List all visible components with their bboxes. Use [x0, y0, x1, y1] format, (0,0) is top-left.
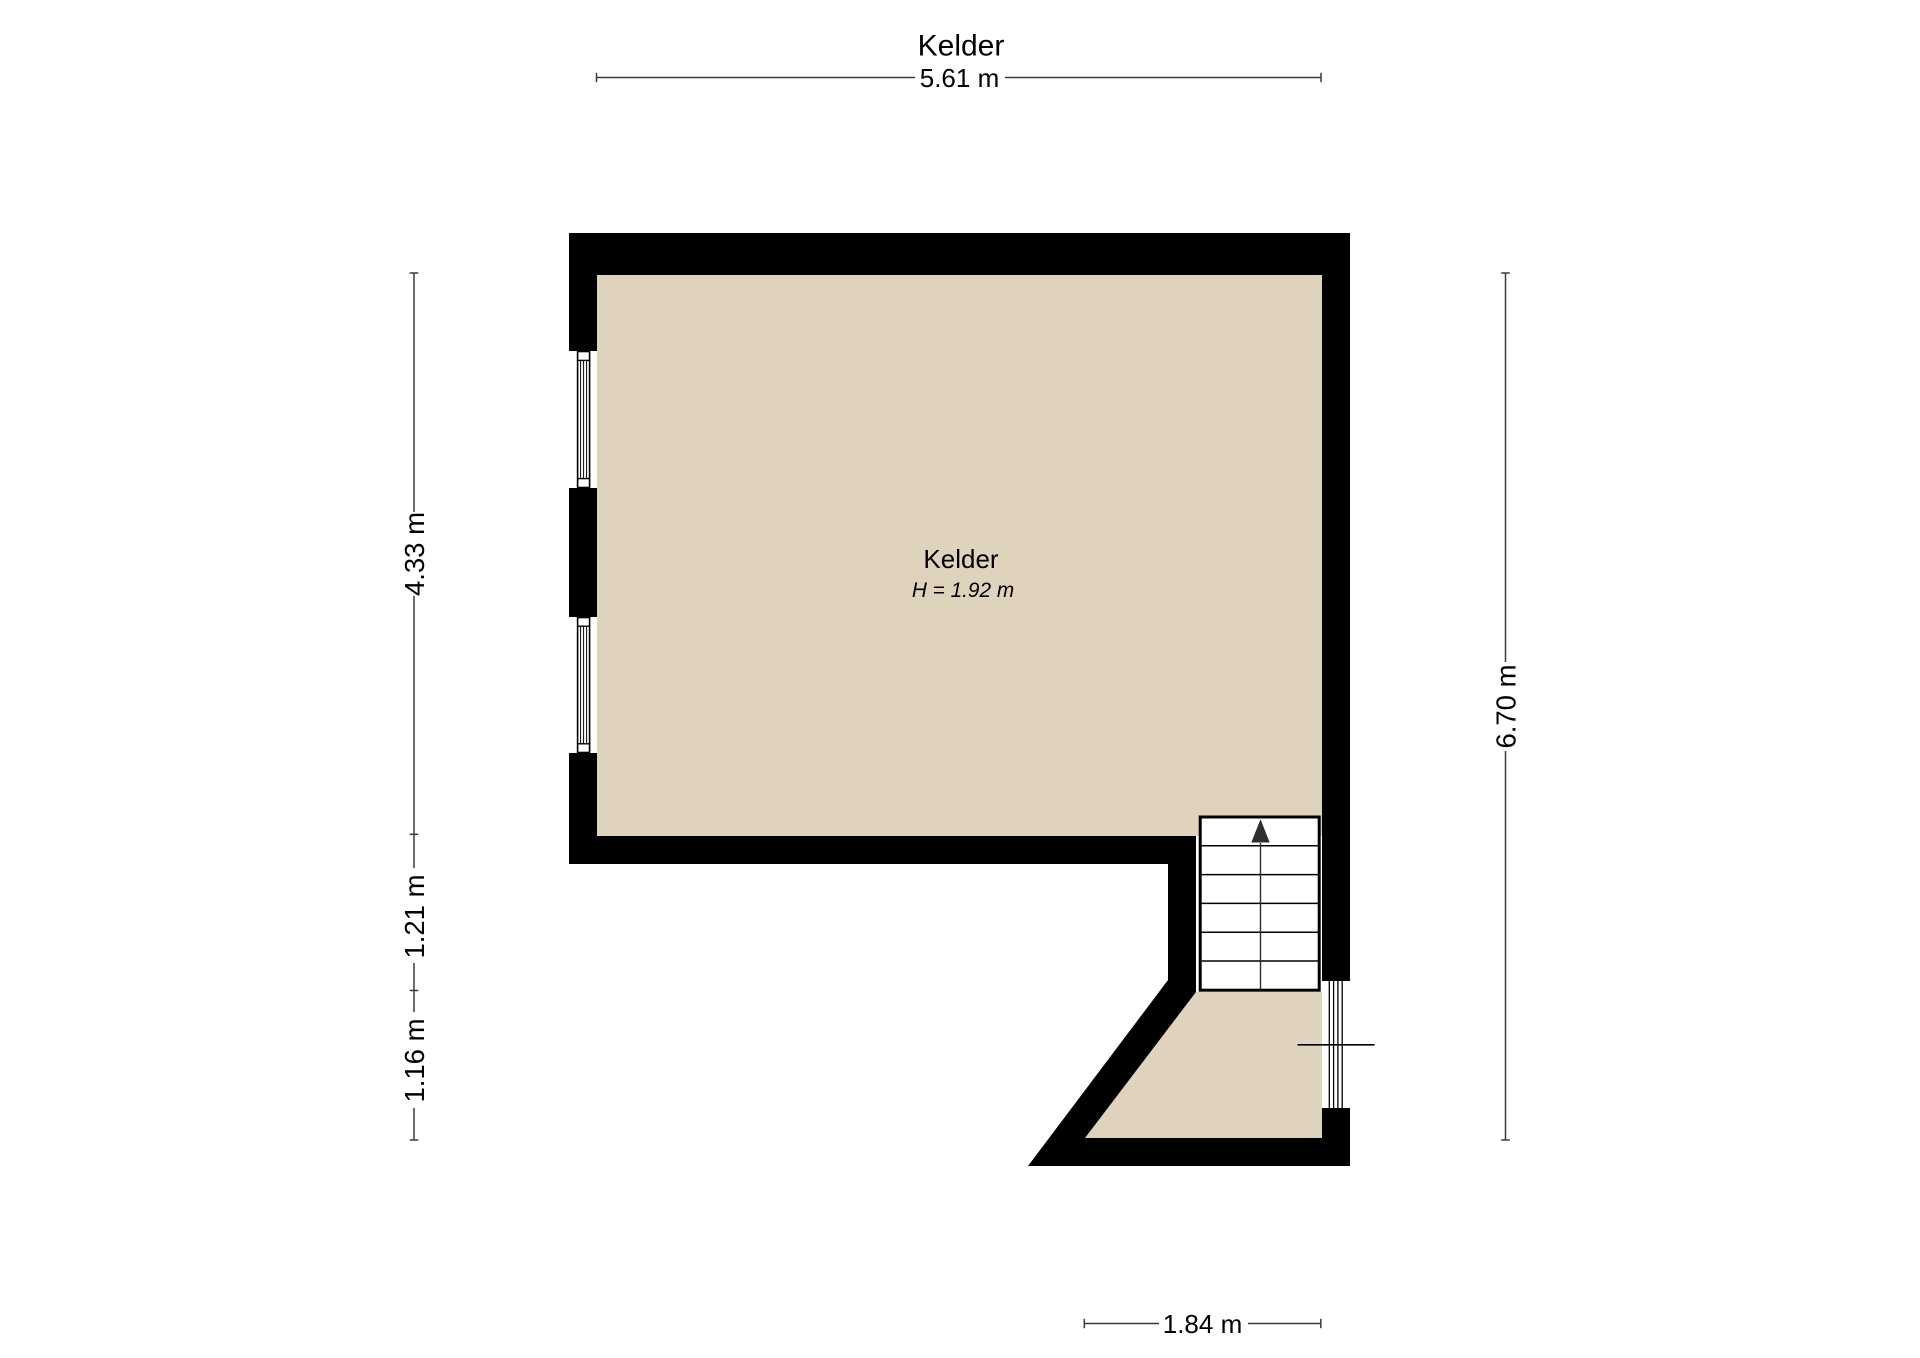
- svg-text:H = 1.92 m: H = 1.92 m: [912, 579, 1014, 602]
- svg-text:4.33 m: 4.33 m: [399, 512, 430, 596]
- svg-text:1.84 m: 1.84 m: [1163, 1309, 1243, 1339]
- svg-text:1.16 m: 1.16 m: [399, 1018, 430, 1102]
- svg-text:1.21 m: 1.21 m: [399, 874, 430, 958]
- svg-text:Kelder: Kelder: [918, 30, 1005, 63]
- svg-text:Kelder: Kelder: [923, 544, 998, 574]
- svg-text:6.70 m: 6.70 m: [1490, 664, 1521, 748]
- svg-text:5.61 m: 5.61 m: [920, 63, 1000, 93]
